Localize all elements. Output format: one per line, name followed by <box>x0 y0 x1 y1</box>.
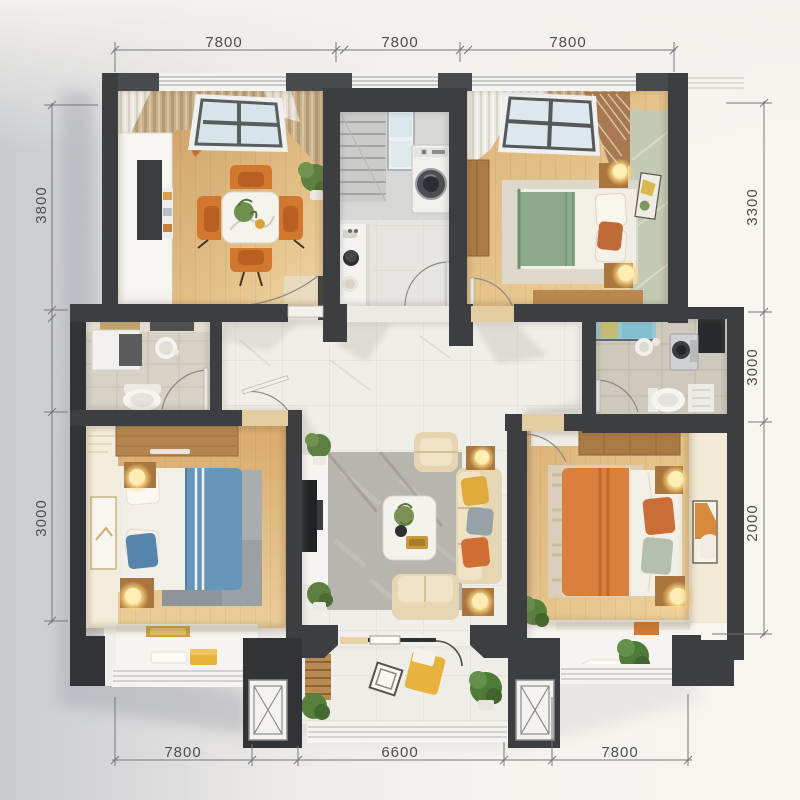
svg-text:7800: 7800 <box>205 34 242 51</box>
svg-text:3800: 3800 <box>33 186 50 223</box>
svg-text:3000: 3000 <box>744 348 761 385</box>
svg-text:7800: 7800 <box>549 34 586 51</box>
svg-text:7800: 7800 <box>164 744 201 761</box>
svg-text:3300: 3300 <box>744 188 761 225</box>
svg-text:3000: 3000 <box>33 499 50 536</box>
svg-text:2000: 2000 <box>744 504 761 541</box>
svg-text:7800: 7800 <box>601 744 638 761</box>
svg-text:7800: 7800 <box>381 34 418 51</box>
svg-text:6600: 6600 <box>381 744 418 761</box>
